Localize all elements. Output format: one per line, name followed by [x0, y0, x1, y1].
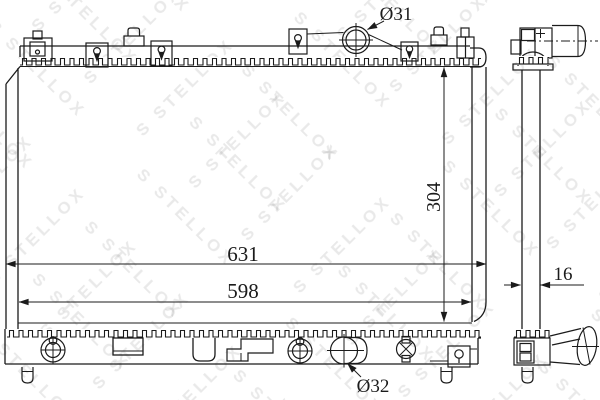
label-core-thickness: 16 — [554, 264, 573, 285]
label-core-height: 304 — [423, 182, 445, 212]
label-overall-width: 631 — [227, 242, 259, 266]
drawing-canvas: S STELLOX S STELLOX — [0, 0, 600, 400]
label-core-width: 598 — [227, 279, 259, 303]
label-filler-diameter: Ø31 — [380, 4, 413, 25]
label-outlet-diameter: Ø32 — [357, 376, 390, 397]
radiator-technical-drawing: S STELLOX S STELLOX — [0, 0, 600, 400]
